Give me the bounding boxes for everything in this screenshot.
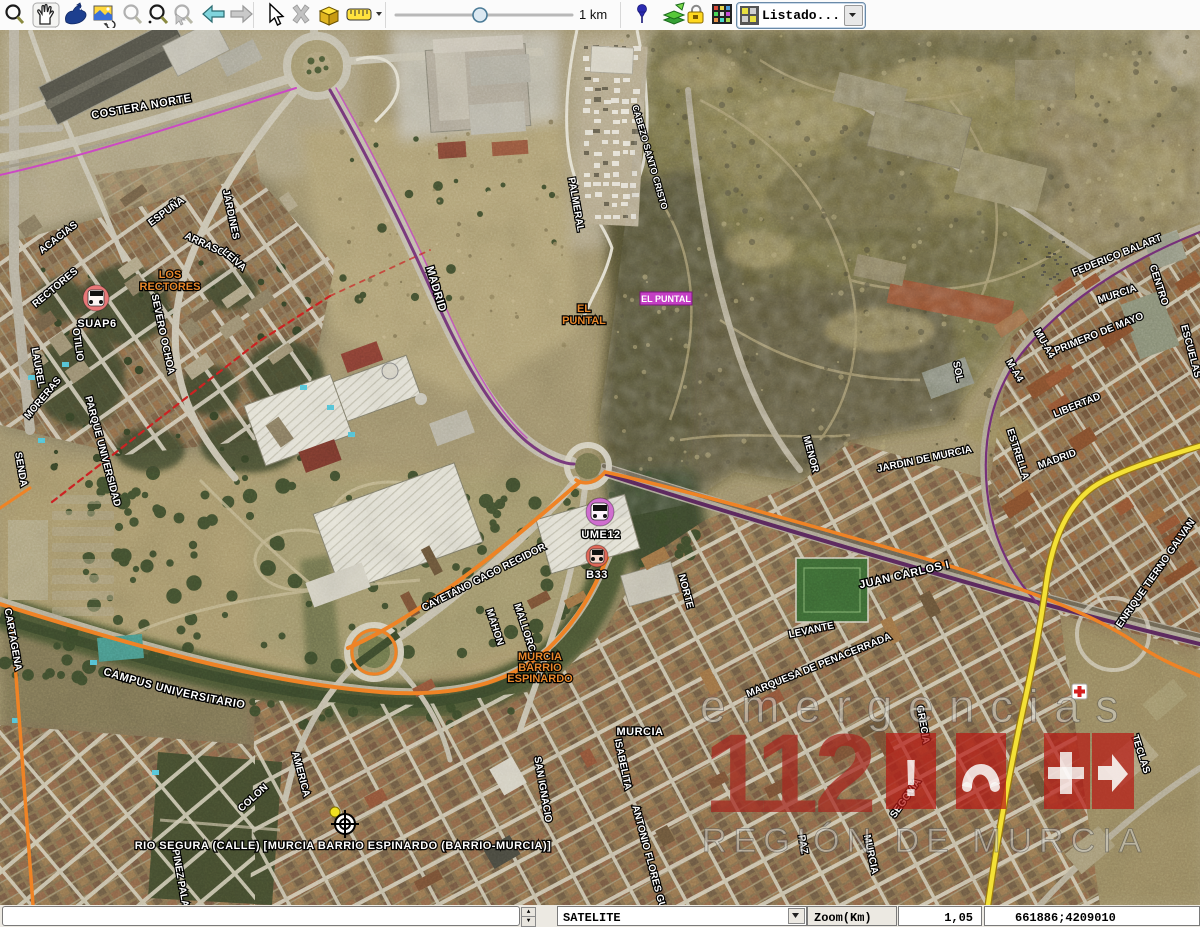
svg-text:MURCIA: MURCIA [617,726,664,738]
svg-text:RECTORES: RECTORES [140,281,201,293]
svg-text:EL PUNTAL: EL PUNTAL [641,294,691,304]
svg-text:RIO SEGURA (CALLE) [MURCIA BAR: RIO SEGURA (CALLE) [MURCIA BARRIO ESPINA… [135,840,552,852]
svg-text:UME12: UME12 [581,529,620,541]
svg-text:EL: EL [577,303,591,315]
svg-text:REGIÓN DE MURCIA: REGIÓN DE MURCIA [702,822,1148,860]
svg-text:!: ! [902,750,919,808]
svg-text:112: 112 [704,711,873,836]
svg-text:PUNTAL: PUNTAL [562,315,606,327]
svg-text:ESPINARDO: ESPINARDO [507,673,573,685]
svg-text:B33: B33 [586,569,608,581]
svg-text:LOS: LOS [159,269,182,281]
svg-text:SUAP6: SUAP6 [77,318,116,330]
